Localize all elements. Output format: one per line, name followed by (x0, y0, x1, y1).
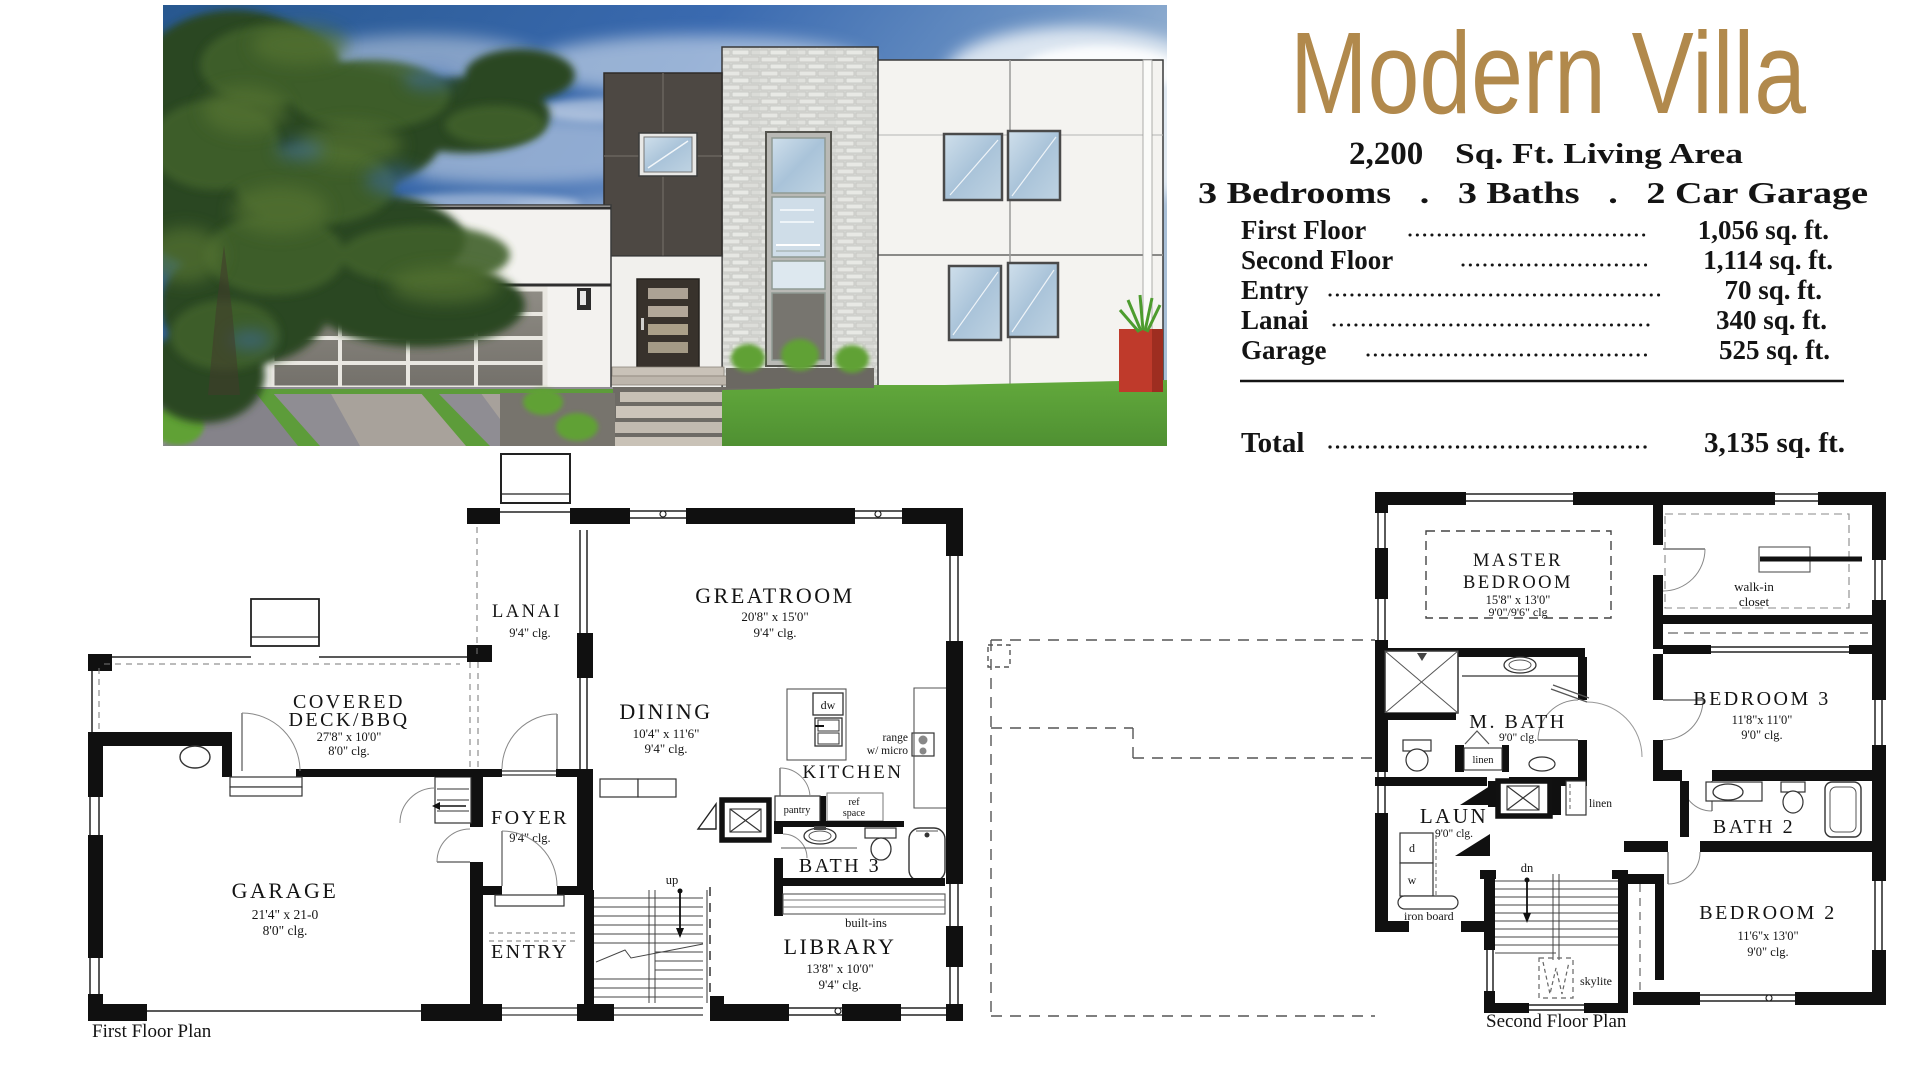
svg-text:First Floor: First Floor (1241, 215, 1366, 245)
svg-text:First Floor Plan: First Floor Plan (92, 1021, 212, 1042)
svg-text:9'0" clg.: 9'0" clg. (1499, 732, 1537, 744)
svg-text:Modern Villa: Modern Villa (1290, 8, 1806, 138)
svg-text:LIBRARY: LIBRARY (784, 934, 897, 959)
svg-text:BATH 2: BATH 2 (1713, 816, 1795, 838)
svg-text:20'8" x 15'0": 20'8" x 15'0" (741, 609, 808, 624)
svg-text:9'4" clg.: 9'4" clg. (818, 977, 861, 992)
svg-text:LAUN: LAUN (1420, 804, 1488, 828)
svg-text:Second Floor Plan: Second Floor Plan (1486, 1011, 1627, 1032)
svg-text:3 Bedrooms . 3 Baths .: 3 Bedrooms . 3 Baths . 2 Car Garage (1198, 175, 1868, 210)
svg-text:built-ins: built-ins (845, 916, 887, 930)
svg-text:Second Floor: Second Floor (1241, 245, 1393, 275)
svg-text:GARAGE: GARAGE (232, 878, 339, 903)
svg-text:linen: linen (1589, 798, 1612, 810)
svg-text:space: space (843, 808, 866, 819)
svg-text:9'4" clg.: 9'4" clg. (753, 625, 796, 640)
svg-text:8'0" clg.: 8'0" clg. (263, 923, 308, 938)
svg-text:iron board: iron board (1404, 909, 1454, 923)
svg-text:11'6"x 13'0": 11'6"x 13'0" (1737, 929, 1798, 943)
svg-text:dn: dn (1521, 861, 1534, 875)
svg-text:Total: Total (1241, 427, 1304, 459)
svg-text:w/ micro: w/ micro (867, 745, 908, 757)
svg-text:BEDROOM 2: BEDROOM 2 (1699, 902, 1837, 924)
svg-text:skylite: skylite (1580, 974, 1612, 988)
svg-text:Garage: Garage (1241, 335, 1326, 365)
svg-text:FOYER: FOYER (491, 807, 569, 829)
svg-text:Lanai: Lanai (1241, 305, 1309, 335)
svg-text:8'0" clg.: 8'0" clg. (328, 744, 369, 758)
svg-text:11'8"x 11'0": 11'8"x 11'0" (1732, 713, 1793, 727)
svg-text:KITCHEN: KITCHEN (803, 762, 904, 783)
svg-text:9'4" clg.: 9'4" clg. (509, 626, 550, 640)
svg-text:9'0" clg.: 9'0" clg. (1747, 945, 1788, 959)
svg-text:27'8" x 10'0": 27'8" x 10'0" (317, 730, 382, 744)
svg-text:9'0"/9'6" clg: 9'0"/9'6" clg (1488, 605, 1547, 619)
svg-text:525 sq. ft.: 525 sq. ft. (1719, 335, 1830, 365)
svg-text:BEDROOM 3: BEDROOM 3 (1693, 688, 1831, 710)
svg-text:w: w (1408, 873, 1417, 887)
svg-text:2,200: 2,200 (1349, 136, 1423, 172)
svg-text:pantry: pantry (784, 805, 812, 816)
svg-text:9'4" clg.: 9'4" clg. (644, 741, 687, 756)
svg-text:21'4" x 21-0: 21'4" x 21-0 (252, 907, 319, 922)
svg-text:M. BATH: M. BATH (1469, 711, 1567, 733)
svg-text:closet: closet (1739, 594, 1770, 609)
svg-text:3,135 sq. ft.: 3,135 sq. ft. (1704, 427, 1845, 459)
svg-text:BEDROOM: BEDROOM (1463, 573, 1573, 593)
svg-text:Entry: Entry (1241, 275, 1309, 305)
svg-text:MASTER: MASTER (1473, 551, 1563, 571)
svg-text:LANAI: LANAI (492, 602, 562, 622)
svg-text:Sq. Ft. Living Area: Sq. Ft. Living Area (1455, 138, 1744, 170)
svg-text:70 sq. ft.: 70 sq. ft. (1724, 275, 1822, 305)
svg-text:DINING: DINING (619, 699, 712, 724)
svg-text:10'4" x 11'6": 10'4" x 11'6" (633, 726, 700, 741)
svg-text:BATH 3: BATH 3 (799, 855, 881, 877)
svg-text:range: range (882, 732, 908, 744)
svg-text:1,114 sq. ft.: 1,114 sq. ft. (1703, 245, 1833, 275)
svg-text:9'0" clg.: 9'0" clg. (1435, 828, 1473, 840)
svg-text:up: up (666, 873, 679, 887)
svg-text:13'8" x 10'0": 13'8" x 10'0" (806, 961, 873, 976)
svg-text:ENTRY: ENTRY (491, 941, 569, 963)
svg-text:1,056 sq. ft.: 1,056 sq. ft. (1698, 215, 1829, 245)
svg-text:d: d (1409, 841, 1415, 855)
svg-text:ref: ref (848, 797, 860, 808)
svg-text:GREATROOM: GREATROOM (695, 583, 854, 608)
svg-text:9'0" clg.: 9'0" clg. (1741, 728, 1782, 742)
svg-text:walk-in: walk-in (1734, 579, 1774, 594)
svg-text:linen: linen (1473, 755, 1495, 766)
svg-text:340 sq. ft.: 340 sq. ft. (1716, 305, 1827, 335)
svg-text:dw: dw (821, 698, 836, 712)
svg-text:DECK/BBQ: DECK/BBQ (288, 709, 409, 731)
